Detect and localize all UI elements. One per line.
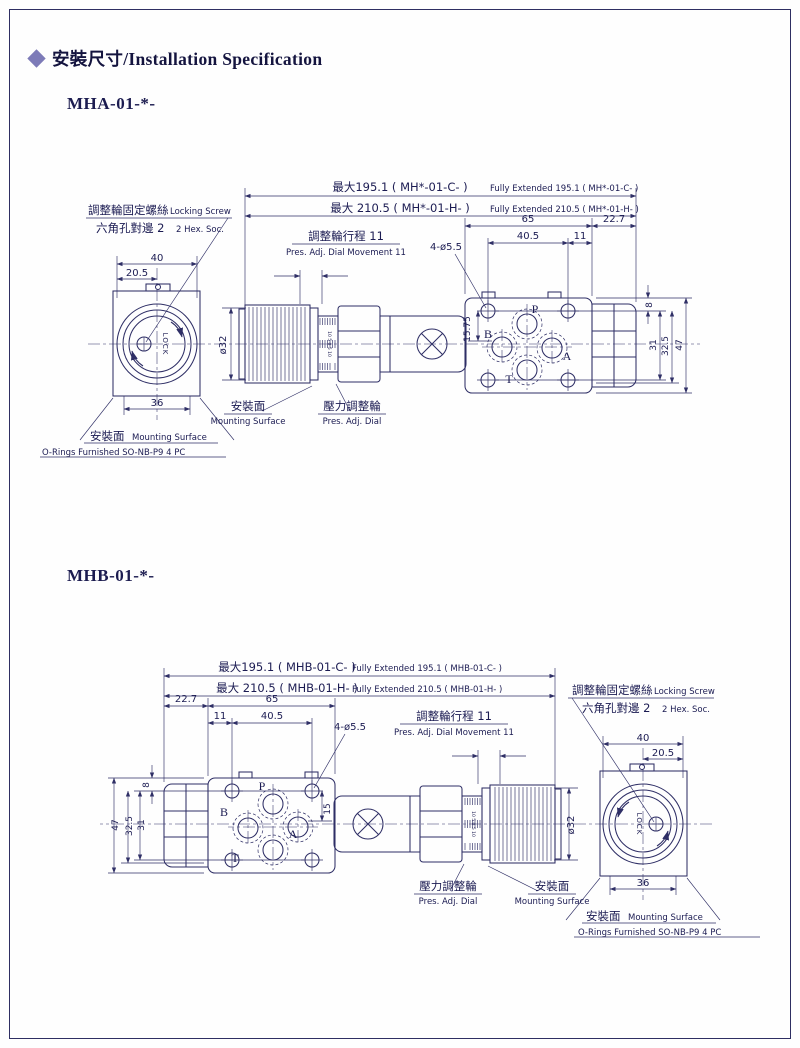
page-title: 安裝尺寸/Installation Specification bbox=[52, 46, 322, 71]
dim-40-5: 40.5 bbox=[517, 231, 539, 242]
overall-h-label-zh: 最大 210.5 ( MH*-01-H- ) bbox=[330, 201, 470, 215]
hex-socket-label-zh: 六角孔對邊 2 bbox=[582, 701, 650, 715]
locking-screw-label-zh: 調整輪固定螺絲 bbox=[572, 683, 653, 697]
dim-11: 11 bbox=[214, 711, 227, 722]
mounting-mid-label-zh: 安裝面 bbox=[535, 879, 570, 893]
dim-65: 65 bbox=[266, 694, 279, 705]
hex-socket-label-zh: 六角孔對邊 2 bbox=[96, 221, 164, 235]
dim-22-7: 22.7 bbox=[603, 214, 625, 225]
diamond-icon bbox=[27, 49, 45, 67]
mounting-mid-label-en: Mounting Surface bbox=[515, 897, 590, 907]
port-b-label: B bbox=[484, 327, 492, 341]
spec-page: 安裝尺寸/Installation Specification MHA-01-*… bbox=[0, 0, 800, 1048]
overall-h-label-zh: 最大 210.5 ( MHB-01-H- ) bbox=[216, 681, 358, 695]
dial-travel-label-en: Pres. Adj. Dial Movement 11 bbox=[286, 248, 406, 258]
dim-31: 31 bbox=[137, 819, 147, 830]
port-a-label: A bbox=[289, 827, 298, 841]
dim-20-5: 20.5 bbox=[126, 268, 148, 279]
dim-47: 47 bbox=[111, 819, 121, 830]
dim-65: 65 bbox=[522, 214, 535, 225]
dim-dia32: ø32 bbox=[566, 816, 577, 835]
dial-travel-label-zh: 調整輪行程 11 bbox=[308, 229, 384, 243]
lock-dial-text: LOCK bbox=[635, 813, 643, 836]
mha-installation-drawing: 最大195.1 ( MH*-01-C- ) Fully Extended 195… bbox=[0, 158, 800, 478]
locking-screw-label-en: Locking Screw bbox=[170, 207, 231, 217]
pres-dial-label-en: Pres. Adj. Dial bbox=[323, 417, 382, 427]
overall-c-label-en: Fully Extended 195.1 ( MH*-01-C- ) bbox=[490, 184, 638, 194]
scale-marks-text: 10 5 0 5 10 bbox=[470, 811, 476, 837]
model-heading-mha: MHA-01-*- bbox=[67, 94, 156, 114]
dim-22-7: 22.7 bbox=[175, 694, 197, 705]
port-b-label: B bbox=[220, 805, 228, 819]
port-a-label: A bbox=[563, 349, 572, 363]
model-heading-mhb: MHB-01-*- bbox=[67, 566, 155, 586]
overall-c-label-zh: 最大195.1 ( MHB-01-C- ) bbox=[218, 660, 355, 674]
locking-screw-label-zh: 調整輪固定螺絲 bbox=[88, 203, 169, 217]
mounting-end-label-en: Mounting Surface bbox=[628, 913, 703, 923]
port-p-label: P bbox=[259, 779, 266, 793]
hex-socket-label-en: 2 Hex. Soc. bbox=[662, 705, 710, 715]
dim-31: 31 bbox=[649, 339, 659, 350]
mhb-installation-drawing: 最大195.1 ( MHB-01-C- ) Fully Extended 195… bbox=[0, 638, 800, 958]
locking-screw-label-en: Locking Screw bbox=[654, 687, 715, 697]
dim-40-5: 40.5 bbox=[261, 711, 283, 722]
lock-dial-text: LOCK bbox=[161, 333, 169, 356]
dial-travel-label-zh: 調整輪行程 11 bbox=[416, 709, 492, 723]
mounting-end-label-zh: 安裝面 bbox=[586, 909, 621, 923]
dim-40: 40 bbox=[637, 733, 650, 744]
dim-32-5: 32.5 bbox=[125, 816, 135, 836]
dim-8: 8 bbox=[142, 782, 152, 788]
page-header: 安裝尺寸/Installation Specification bbox=[30, 46, 322, 71]
dim-20-5: 20.5 bbox=[652, 748, 674, 759]
mounting-mid-label-zh: 安裝面 bbox=[231, 399, 266, 413]
mounting-end-label-zh: 安裝面 bbox=[90, 429, 125, 443]
dim-40: 40 bbox=[151, 253, 164, 264]
port-t-label: T bbox=[505, 372, 513, 386]
dim-holes: 4-ø5.5 bbox=[430, 242, 462, 253]
dim-47: 47 bbox=[675, 339, 685, 350]
dial-travel-label-en: Pres. Adj. Dial Movement 11 bbox=[394, 728, 514, 738]
dim-36: 36 bbox=[637, 878, 650, 889]
dim-36: 36 bbox=[151, 398, 164, 409]
dim-15: 15 bbox=[323, 803, 333, 814]
dim-32-5: 32.5 bbox=[661, 336, 671, 356]
overall-c-label-en: Fully Extended 195.1 ( MHB-01-C- ) bbox=[352, 664, 502, 674]
port-p-label: P bbox=[532, 302, 539, 316]
overall-h-label-en: Fully Extended 210.5 ( MHB-01-H- ) bbox=[352, 685, 502, 695]
dim-dia32: ø32 bbox=[218, 336, 229, 355]
orings-note: O-Rings Furnished SO-NB-P9 4 PC bbox=[578, 928, 721, 938]
overall-c-label-zh: 最大195.1 ( MH*-01-C- ) bbox=[332, 180, 467, 194]
port-t-label: T bbox=[231, 851, 239, 865]
pres-dial-label-en: Pres. Adj. Dial bbox=[419, 897, 478, 907]
mounting-mid-label-en: Mounting Surface bbox=[211, 417, 286, 427]
mounting-end-label-en: Mounting Surface bbox=[132, 433, 207, 443]
scale-marks-text: 10 5 0 5 10 bbox=[326, 331, 332, 357]
orings-note: O-Rings Furnished SO-NB-P9 4 PC bbox=[42, 448, 185, 458]
hex-socket-label-en: 2 Hex. Soc. bbox=[176, 225, 224, 235]
dim-holes: 4-ø5.5 bbox=[334, 722, 366, 733]
pres-dial-label-zh: 壓力調整輪 bbox=[419, 879, 477, 893]
dim-11: 11 bbox=[574, 231, 587, 242]
dim-8: 8 bbox=[645, 302, 655, 308]
dim-15-75: 15.75 bbox=[463, 316, 473, 342]
pres-dial-label-zh: 壓力調整輪 bbox=[323, 399, 381, 413]
mha-labels: 最大195.1 ( MH*-01-C- ) Fully Extended 195… bbox=[42, 180, 685, 458]
